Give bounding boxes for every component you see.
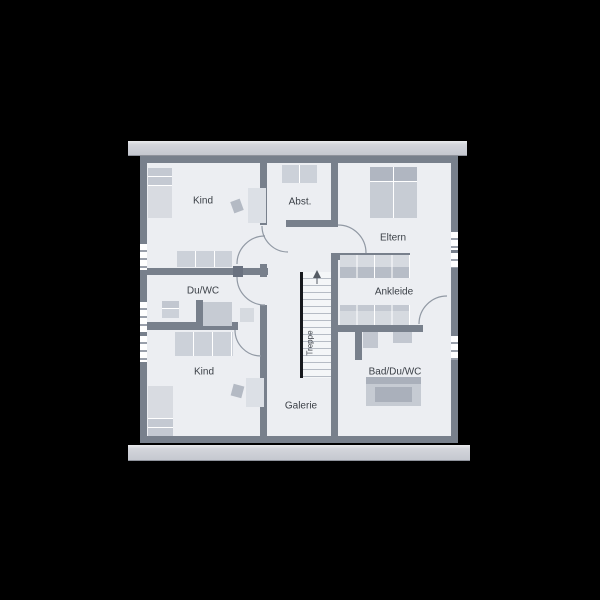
label-galerie: Galerie — [285, 401, 317, 412]
door-arc-ankleide-bad — [419, 296, 447, 324]
label-abst: Abst. — [289, 197, 312, 208]
label-eltern: Eltern — [380, 233, 406, 244]
floorplan-canvas: Kind Abst. Eltern Du/WC Ankleide Treppe … — [0, 0, 600, 600]
label-bad-duwc: Bad/Du/WC — [369, 367, 422, 378]
roof-edge-bar-top — [128, 141, 467, 156]
floorplan: Kind Abst. Eltern Du/WC Ankleide Treppe … — [140, 156, 458, 443]
label-kind-bottom: Kind — [194, 367, 214, 378]
label-kind-top: Kind — [193, 196, 213, 207]
label-treppe: Treppe — [306, 330, 315, 355]
roof-edge-bar-bottom — [128, 445, 470, 461]
door-arc-kind-top — [237, 236, 265, 264]
door-arc-kind-bottom — [235, 330, 261, 356]
label-ankleide: Ankleide — [375, 287, 413, 298]
label-duwc: Du/WC — [187, 286, 219, 297]
door-arc-eltern — [338, 225, 366, 253]
door-arc-duwc — [237, 277, 265, 305]
door-arc-abst — [262, 226, 288, 252]
